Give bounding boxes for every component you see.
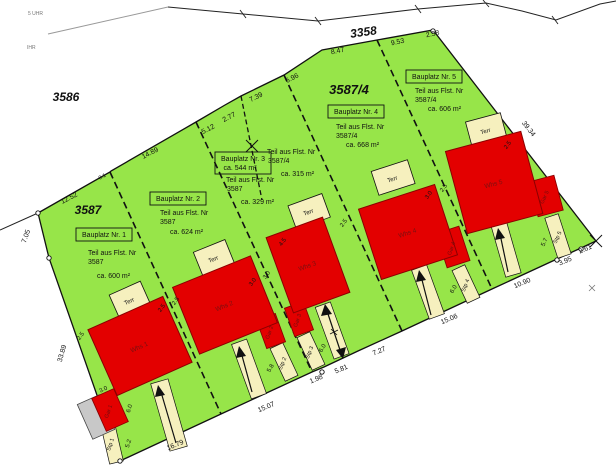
- svg-text:Teil aus Flst. Nr: Teil aus Flst. Nr: [415, 88, 464, 95]
- boundary-line-west: [0, 213, 38, 230]
- svg-text:Teil aus Flst. Nr: Teil aus Flst. Nr: [267, 149, 316, 156]
- corner-text-1: 5 UHR: [28, 11, 43, 17]
- svg-text:3587: 3587: [88, 259, 104, 266]
- svg-text:15.07: 15.07: [257, 401, 276, 414]
- plot-2-title: Bauplatz Nr. 2: [156, 196, 200, 203]
- svg-text:Teil aus Flst. Nr: Teil aus Flst. Nr: [160, 210, 209, 217]
- svg-text:Teil aus Flst. Nr: Teil aus Flst. Nr: [336, 124, 385, 131]
- svg-text:3587: 3587: [227, 186, 243, 193]
- svg-text:3587/4: 3587/4: [336, 133, 358, 140]
- plot-4-title: Bauplatz Nr. 4: [334, 109, 378, 116]
- parcel-label-3587: 3587: [75, 203, 103, 217]
- svg-text:7.27: 7.27: [372, 346, 387, 358]
- svg-text:ca. 606 m²: ca. 606 m²: [428, 106, 462, 113]
- svg-text:ca. 624 m²: ca. 624 m²: [170, 229, 204, 236]
- plot-3-title-area: ca. 544 m²: [223, 165, 257, 172]
- parcel-label-3586: 3586: [53, 90, 80, 104]
- boundary-tick-marks: [240, 0, 558, 25]
- plot-3-title: Bauplatz Nr. 3: [221, 156, 265, 163]
- svg-text:ca. 668 m²: ca. 668 m²: [346, 142, 380, 149]
- dim-left-1: 33.89: [57, 344, 69, 363]
- plot-5-title: Bauplatz Nr. 5: [412, 74, 456, 81]
- svg-text:3587/4: 3587/4: [415, 97, 437, 104]
- dim-left-0: 7.05: [21, 229, 32, 244]
- svg-text:10.90: 10.90: [513, 277, 532, 290]
- site-plan-drawing: 5 UHR IHR 3586 3587 3587/4 3358 Bauplatz…: [0, 0, 616, 476]
- parcel-label-3587-4: 3587/4: [329, 82, 370, 97]
- svg-text:3587/4: 3587/4: [268, 158, 290, 165]
- svg-text:ca. 315 m²: ca. 315 m²: [281, 171, 315, 178]
- svg-text:5.81: 5.81: [334, 364, 349, 376]
- boundary-line-north: [168, 1, 616, 21]
- boundary-line-far: [48, 7, 168, 34]
- svg-text:3587: 3587: [160, 219, 176, 226]
- svg-text:Teil aus Flst. Nr: Teil aus Flst. Nr: [226, 177, 275, 184]
- plot-1-title: Bauplatz Nr. 1: [82, 232, 126, 239]
- site-plan-svg: 5 UHR IHR 3586 3587 3587/4 3358 Bauplatz…: [0, 0, 616, 476]
- dim-right-0: 39.34: [520, 120, 536, 138]
- parcel-label-3358: 3358: [349, 23, 378, 41]
- svg-text:15.06: 15.06: [440, 313, 459, 326]
- svg-text:ca. 600 m²: ca. 600 m²: [97, 273, 131, 280]
- svg-text:ca. 329 m²: ca. 329 m²: [241, 199, 275, 206]
- svg-text:Teil aus Flst. Nr: Teil aus Flst. Nr: [88, 250, 137, 257]
- corner-text-2: IHR: [27, 45, 36, 51]
- svg-text:1.98: 1.98: [309, 374, 324, 386]
